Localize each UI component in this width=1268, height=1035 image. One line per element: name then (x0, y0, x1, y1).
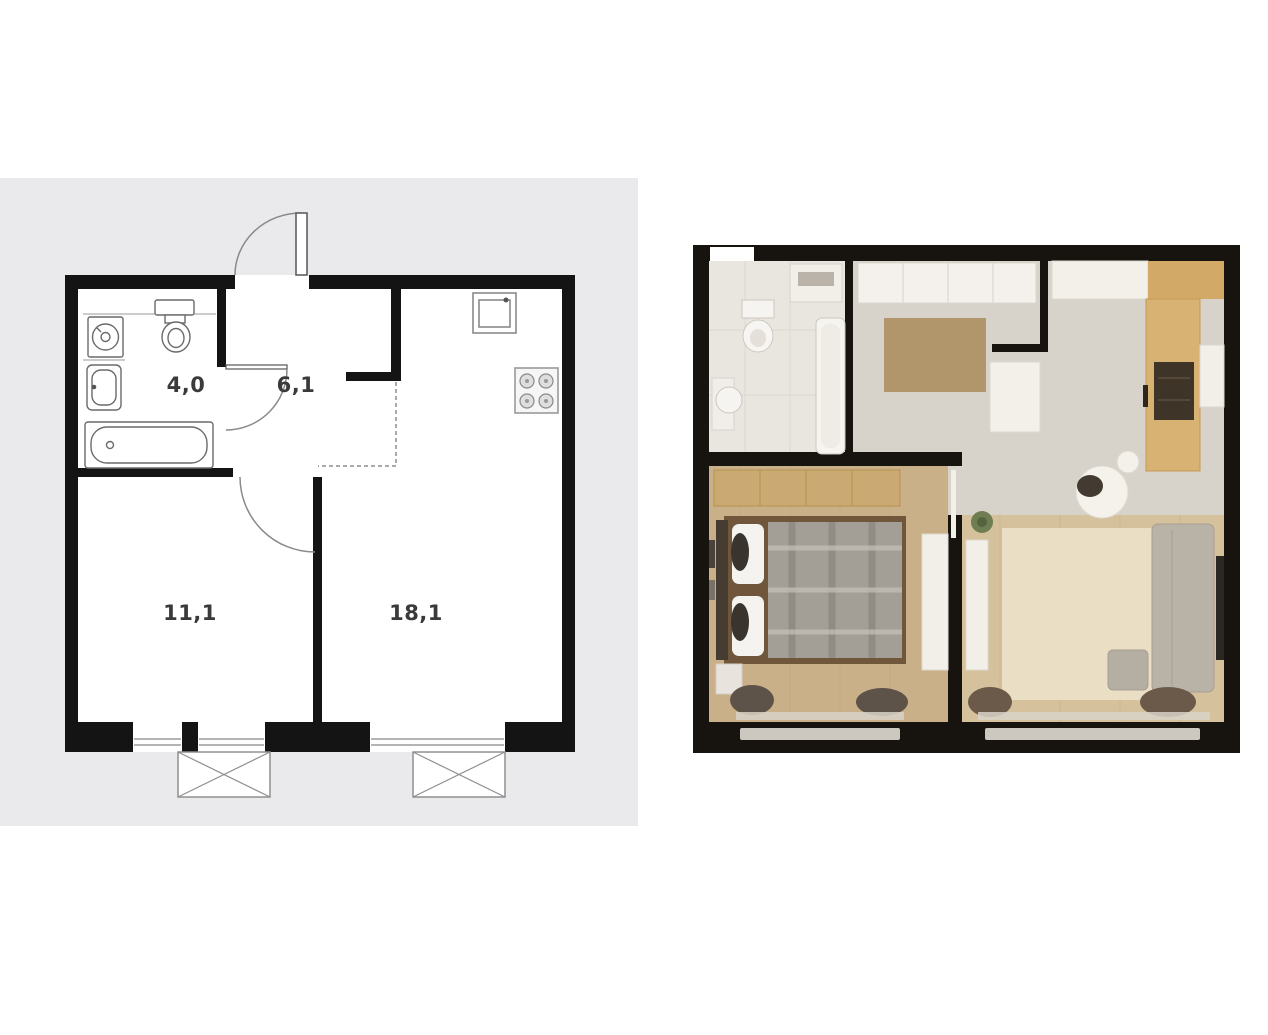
dark-cushion-2 (731, 603, 749, 641)
washing-machine (88, 317, 123, 357)
bathtub-inner-3d (821, 324, 840, 448)
bedroom-curtain-right (856, 688, 908, 716)
toilet-tank-3d (742, 300, 774, 318)
render-room-door-leaf (951, 470, 956, 538)
living-sheer (978, 712, 1210, 720)
kitchen-cabinet-wood (1148, 261, 1224, 299)
wall-art-2 (709, 580, 715, 600)
bedroom-wardrobe (714, 470, 900, 506)
bedroom-dresser (922, 534, 948, 670)
stove-3d (1154, 362, 1194, 420)
dishwasher (1200, 345, 1224, 407)
tv (1216, 556, 1224, 660)
bedroom-area-label: 11,1 (163, 601, 217, 625)
plan-canvas: 4,0 6,1 11,1 18,1 (0, 0, 1268, 1035)
toilet-seat-3d (750, 329, 766, 347)
bathroom-area-label: 4,0 (167, 373, 206, 397)
floor-plan-comparison: 4,0 6,1 11,1 18,1 (0, 0, 1268, 1035)
radiator-living (985, 728, 1200, 740)
sofa (1152, 524, 1214, 692)
living-kitchen-area-label: 18,1 (389, 601, 443, 625)
white-chair (1117, 451, 1139, 473)
render-living (966, 524, 1224, 720)
oven-handle (1143, 385, 1148, 407)
kitchen-sink (473, 293, 516, 333)
round-sink-3d (716, 387, 742, 413)
sink (87, 365, 121, 410)
room-door-leaf (313, 477, 318, 552)
bedroom-curtain-left (730, 685, 774, 715)
wardrobe (858, 263, 1036, 303)
entrance-door-leaf (296, 213, 307, 275)
ottoman (1108, 650, 1148, 690)
stove (515, 368, 558, 413)
radiator-bedroom (740, 728, 900, 740)
wall-art-1 (709, 540, 715, 568)
plant-center (977, 517, 987, 527)
hall-rug (884, 318, 986, 392)
hallway-area-label: 6,1 (277, 373, 316, 397)
dark-chair (1077, 475, 1103, 497)
bedroom-sheer (736, 712, 904, 720)
bathroom-door-leaf (226, 365, 287, 369)
towel (798, 272, 834, 286)
fridge (990, 362, 1040, 432)
kitchen-cabinet-white (1052, 261, 1148, 299)
dark-cushion-1 (731, 533, 749, 571)
living-console (966, 540, 988, 670)
render-view (693, 245, 1240, 753)
bathtub (85, 422, 213, 468)
headboard (716, 520, 728, 660)
